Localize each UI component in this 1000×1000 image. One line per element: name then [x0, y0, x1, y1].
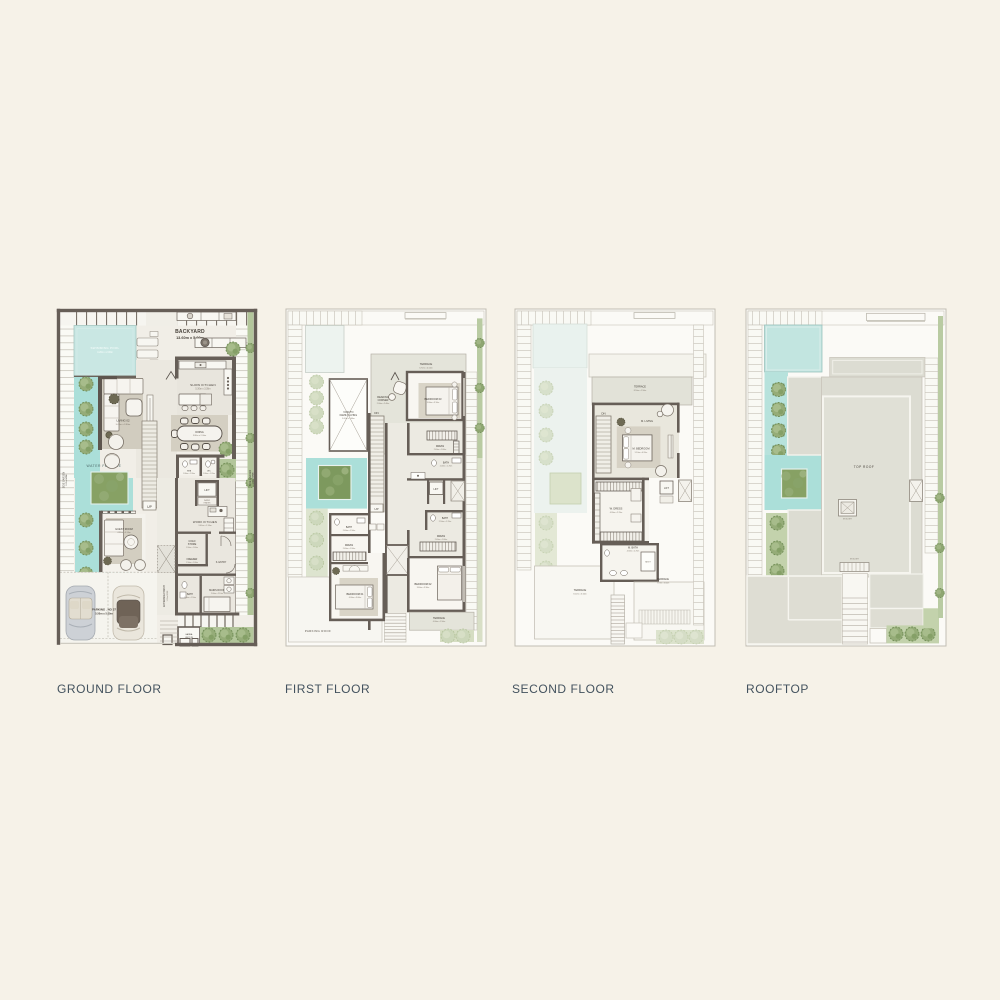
- svg-text:5.30m x 3.30m: 5.30m x 3.30m: [195, 389, 210, 391]
- svg-text:2.40m x 1.50m: 2.40m x 1.50m: [343, 530, 356, 532]
- svg-text:4.20m x 2.00m: 4.20m x 2.00m: [97, 351, 113, 354]
- svg-text:M. LIVING: M. LIVING: [641, 419, 653, 423]
- svg-text:ENTRANCE PORCH: ENTRANCE PORCH: [163, 585, 166, 607]
- svg-text:TERRACE: TERRACE: [433, 617, 445, 620]
- svg-text:4.30m x 2.70m: 4.30m x 2.70m: [610, 512, 623, 514]
- svg-text:3.00m x 3.10m: 3.00m x 3.10m: [427, 402, 440, 404]
- svg-text:2.60m x 2.10m: 2.60m x 2.10m: [211, 593, 223, 595]
- svg-text:TOP ROOF: TOP ROOF: [854, 465, 875, 469]
- svg-text:DRESS: DRESS: [437, 535, 446, 538]
- svg-text:5.50m x 5.00m: 5.50m x 5.00m: [95, 612, 113, 616]
- svg-text:0.10m WIDE: 0.10m WIDE: [66, 474, 68, 486]
- svg-text:CORNER: CORNER: [378, 399, 389, 402]
- svg-text:MAIDS ROOM: MAIDS ROOM: [209, 589, 225, 592]
- svg-text:2.40m x 1.90m: 2.40m x 1.90m: [343, 548, 356, 550]
- svg-text:DN: DN: [601, 412, 605, 416]
- svg-text:1.60m x 1.50m: 1.60m x 1.50m: [184, 597, 196, 599]
- svg-text:PARKING ROOF: PARKING ROOF: [305, 629, 331, 633]
- svg-text:1.50m x 1.00m: 1.50m x 1.00m: [186, 562, 198, 564]
- svg-text:LIFT: LIFT: [434, 488, 439, 491]
- svg-text:SKYLIGHT: SKYLIGHT: [850, 559, 860, 561]
- svg-text:2.50m x 1.70m: 2.50m x 1.70m: [439, 521, 452, 523]
- svg-text:BATH: BATH: [442, 517, 448, 520]
- svg-text:SKYLIGHT: SKYLIGHT: [843, 519, 853, 521]
- svg-text:4.00m x 3.00m: 4.00m x 3.00m: [349, 597, 362, 599]
- svg-text:3.80m x 2.00m: 3.80m x 2.00m: [193, 435, 207, 437]
- svg-text:3.00m x 2.40m: 3.00m x 2.40m: [342, 418, 355, 420]
- svg-text:2.00m x 1.70m: 2.00m x 1.70m: [440, 465, 453, 467]
- svg-text:DN: DN: [374, 411, 378, 415]
- svg-text:M. BATH: M. BATH: [628, 547, 638, 550]
- svg-text:BATH: BATH: [346, 526, 352, 529]
- svg-text:1.80m x 1.20m: 1.80m x 1.20m: [203, 473, 215, 475]
- svg-text:3.00m x 1.90m: 3.00m x 1.90m: [198, 525, 212, 527]
- svg-text:GUEST ROOM: GUEST ROOM: [115, 527, 133, 531]
- svg-text:4.30m x 2.70m: 4.30m x 2.70m: [627, 551, 640, 553]
- svg-text:DRESS: DRESS: [345, 544, 354, 547]
- svg-text:S. ENTRY: S. ENTRY: [216, 562, 227, 564]
- svg-text:FREEZER: FREEZER: [187, 559, 198, 561]
- svg-text:3.60m x 3.30m: 3.60m x 3.30m: [417, 587, 430, 589]
- svg-text:UP: UP: [147, 505, 152, 509]
- svg-text:TERRACE: TERRACE: [574, 588, 587, 592]
- svg-text:LIFT: LIFT: [664, 487, 669, 490]
- svg-text:FAMILY LIVING: FAMILY LIVING: [340, 414, 358, 417]
- svg-text:4.00m x 1.50m: 4.00m x 1.50m: [433, 621, 446, 623]
- svg-text:WORK KITCHEN: WORK KITCHEN: [193, 520, 217, 524]
- svg-text:BEDROOM 01: BEDROOM 01: [346, 592, 364, 596]
- svg-text:STORE: STORE: [188, 543, 197, 546]
- svg-text:LIFT: LIFT: [204, 488, 210, 492]
- svg-text:2.00m x 2.40m: 2.00m x 2.40m: [377, 403, 390, 405]
- svg-text:DINING: DINING: [195, 431, 204, 434]
- svg-text:W. DRESS: W. DRESS: [610, 507, 623, 511]
- svg-text:SHOW KITCHEN: SHOW KITCHEN: [190, 383, 216, 387]
- svg-text:BEDROOM 03: BEDROOM 03: [424, 397, 442, 401]
- svg-text:DRESS: DRESS: [436, 445, 445, 448]
- svg-text:PARKING . NO 37: PARKING . NO 37: [92, 608, 116, 612]
- svg-text:TERRACE: TERRACE: [657, 578, 669, 581]
- svg-text:1.50m WIDE: 1.50m WIDE: [167, 590, 169, 601]
- svg-text:6.70m x 4.00m: 6.70m x 4.00m: [419, 367, 433, 369]
- svg-text:8.10m x 3.60m: 8.10m x 3.60m: [573, 593, 587, 595]
- svg-text:BACKYARD: BACKYARD: [175, 329, 205, 335]
- svg-text:UP: UP: [374, 507, 378, 511]
- svg-text:2.40m x 1.60m: 2.40m x 1.60m: [434, 449, 447, 451]
- svg-text:GARBA.: GARBA.: [185, 633, 193, 636]
- svg-text:SWIMMING POOL: SWIMMING POOL: [90, 346, 119, 350]
- svg-text:M. BEDROOM: M. BEDROOM: [632, 447, 649, 451]
- svg-text:BATH: BATH: [443, 462, 449, 465]
- svg-text:BEDROOM 02: BEDROOM 02: [414, 582, 432, 586]
- svg-text:VANITY: VANITY: [645, 561, 652, 564]
- svg-text:5.00m x 3.80m: 5.00m x 3.80m: [116, 424, 131, 426]
- svg-text:HEATER: HEATER: [204, 501, 211, 504]
- svg-text:1.90m x 1.60m: 1.90m x 1.60m: [186, 547, 198, 549]
- svg-text:TERRACE: TERRACE: [420, 362, 433, 366]
- svg-text:7.70m x 3.60m: 7.70m x 3.60m: [657, 582, 670, 584]
- svg-text:5.10m x 4.20m: 5.10m x 4.20m: [635, 452, 648, 454]
- svg-text:1.80m x 1.30m: 1.80m x 1.30m: [183, 473, 195, 475]
- svg-text:2.40m x 1.60m: 2.40m x 1.60m: [435, 539, 448, 541]
- svg-text:8.50m x 1.50m: 8.50m x 1.50m: [634, 390, 647, 392]
- svg-text:TERRACE: TERRACE: [634, 386, 646, 389]
- svg-text:4.30m x 3.50m: 4.30m x 3.50m: [117, 532, 131, 534]
- svg-text:BATH: BATH: [187, 593, 193, 596]
- svg-text:LIVING 02: LIVING 02: [116, 419, 130, 423]
